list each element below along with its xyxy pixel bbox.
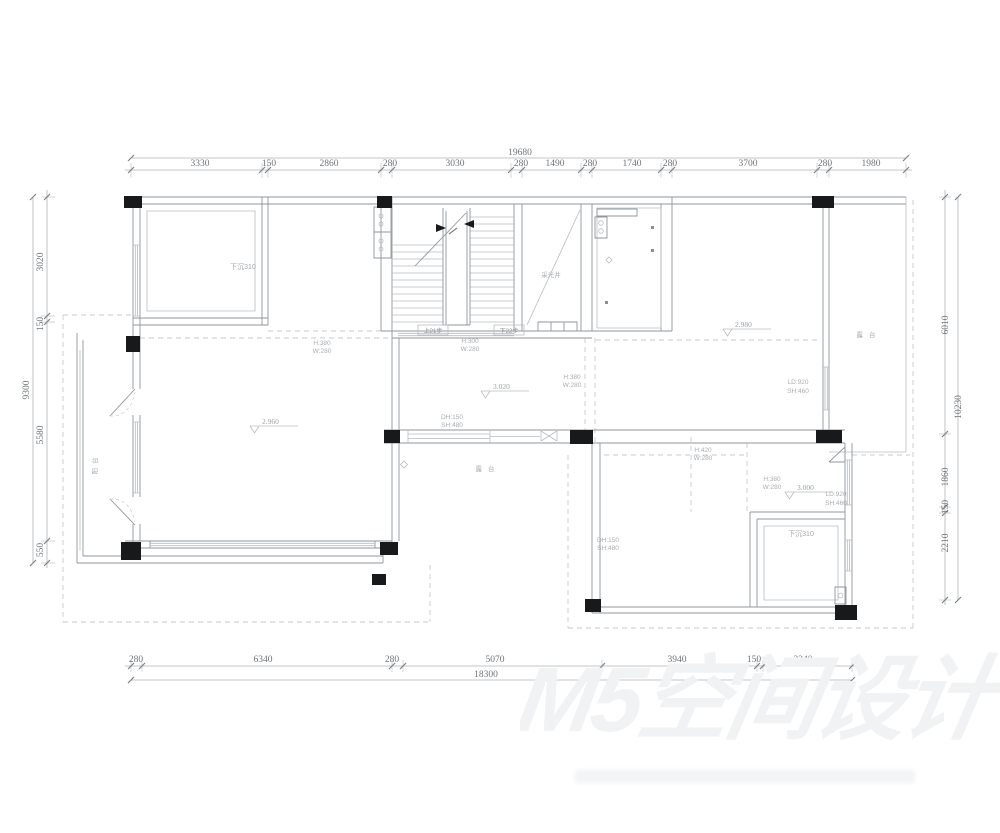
column [585, 599, 601, 612]
dim-label: 550 [36, 543, 46, 558]
light-well-label: 采光井 [541, 270, 561, 279]
stair-up-label: 上21步 [424, 327, 443, 335]
column [816, 430, 842, 443]
window-spec: W:280 [461, 346, 480, 353]
level-value: 3.000 [797, 483, 814, 492]
column [380, 542, 398, 555]
ceiling-dot [651, 226, 654, 229]
dim-label: 2240 [794, 655, 813, 665]
column [384, 430, 400, 443]
dim-label: 280 [385, 655, 400, 665]
column [377, 196, 392, 208]
dim-label: 280 [583, 159, 598, 169]
window-spec: H:380 [563, 374, 581, 381]
dim-label: 3020 [36, 252, 46, 271]
dim-label: 150 [262, 159, 277, 169]
room-note: 下沉310 [230, 263, 256, 271]
terrace-label: 露台 [857, 330, 882, 339]
paper-background [0, 0, 1000, 833]
dim-label: 3700 [739, 159, 758, 169]
column [126, 336, 140, 352]
window-spec: LD:920 [788, 379, 809, 386]
level-value: 3.020 [493, 382, 510, 391]
column [121, 542, 141, 560]
dim-label: 5070 [486, 655, 505, 665]
column [835, 605, 857, 620]
dim-label: 280 [514, 159, 529, 169]
window-spec: SH:460 [787, 388, 809, 395]
window-spec: W:280 [694, 455, 713, 462]
window-spec: H:380 [313, 340, 331, 347]
door-spec: DH:150 [441, 414, 463, 421]
dim-total-label: 10230 [954, 395, 964, 419]
floor-plan-page: 3330 150 2860 280 3030 280 1490 280 1740… [0, 0, 1000, 833]
window-spec: LD:920 [826, 491, 847, 498]
dim-total-label: 18300 [474, 670, 498, 680]
dim-label: 2860 [320, 159, 339, 169]
dim-label: 1980 [862, 159, 881, 169]
window-spec: H:420 [694, 447, 712, 454]
door-spec: SH:480 [441, 422, 463, 429]
column [372, 574, 386, 585]
dim-label: 1740 [623, 159, 642, 169]
dim-label: 280 [129, 655, 144, 665]
dim-label: 6010 [941, 315, 951, 334]
window-spec: SH:460 [825, 500, 847, 507]
dim-label: 5580 [36, 425, 46, 444]
dim-label: 280 [663, 159, 678, 169]
window-spec: H:380 [763, 476, 781, 483]
balcony-label: 阳台 [90, 454, 99, 475]
level-value: 2.960 [262, 417, 279, 426]
ceiling-dot [651, 249, 654, 252]
dim-label: 3030 [446, 159, 465, 169]
dim-total-label: 19680 [508, 148, 532, 158]
dim-label: 2210 [941, 533, 951, 552]
ceiling-dot [605, 301, 608, 304]
column [812, 196, 834, 208]
dim-label: 280 [383, 159, 398, 169]
stair-down-label: 下22步 [500, 327, 519, 335]
dim-label: 3940 [668, 655, 687, 665]
dim-label: 150 [36, 317, 46, 332]
level-value: 2.980 [735, 320, 752, 329]
dim-label: 6340 [254, 655, 273, 665]
window-spec: W:280 [563, 382, 582, 389]
dim-label: 150 [941, 500, 951, 515]
dim-label: 150 [747, 655, 762, 665]
window-spec: W:280 [313, 348, 332, 355]
column [124, 196, 142, 208]
room-note: 下沉310 [788, 530, 814, 538]
dim-label: 3330 [191, 159, 210, 169]
window-spec: H:300 [461, 338, 479, 345]
dim-label: 280 [818, 159, 833, 169]
dim-label: 1490 [546, 159, 565, 169]
door-spec: DH:150 [597, 537, 619, 544]
terrace-label: 露台 [476, 464, 501, 473]
floor-plan-drawing: 3330 150 2860 280 3030 280 1490 280 1740… [0, 0, 1000, 833]
dim-label: 1860 [941, 467, 951, 486]
door-spec: SH:480 [597, 545, 619, 552]
dim-total-label: 9300 [22, 380, 32, 399]
column [570, 430, 593, 444]
window-spec: W:280 [763, 484, 782, 491]
